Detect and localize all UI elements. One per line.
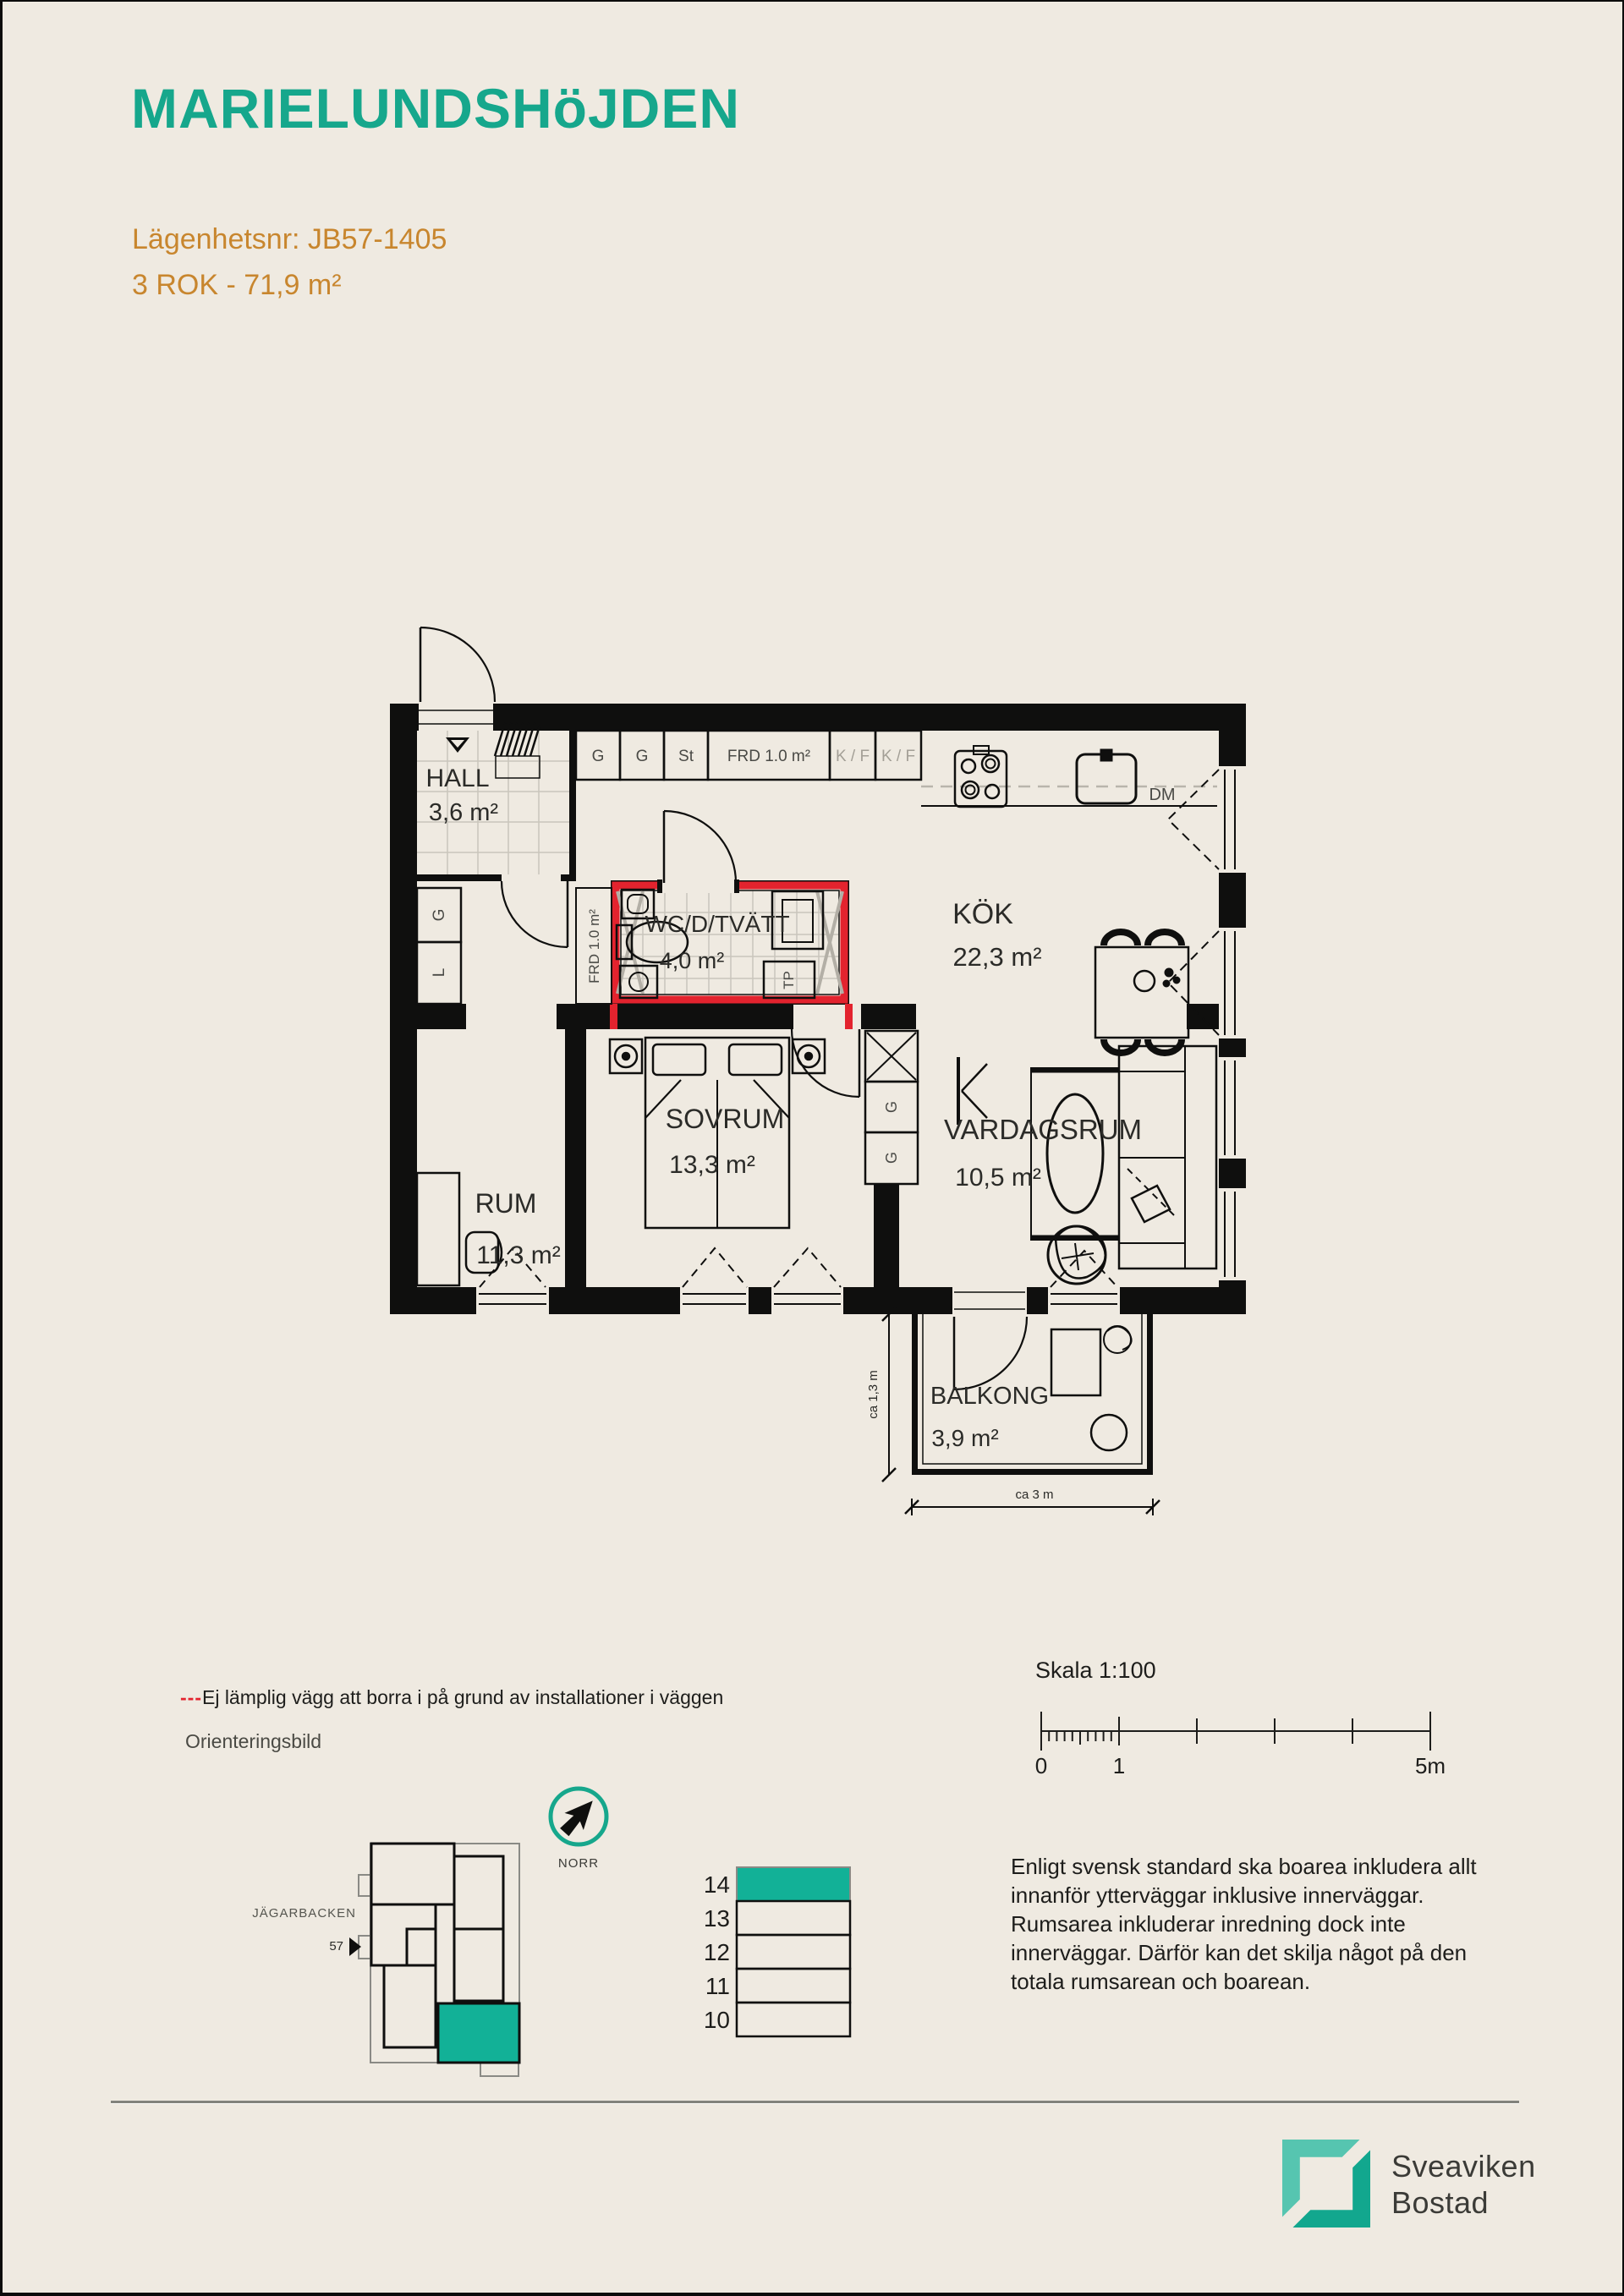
- drill-warning-text: Ej lämplig vägg att borra i på grund av …: [202, 1686, 723, 1708]
- floor-number-13: 13: [704, 1905, 730, 1932]
- floorplan-drawing: G G St FRD 1.0 m² K / F K / F: [366, 577, 1263, 1524]
- coffee-table-icon: [1047, 1094, 1103, 1213]
- floorplan-document-page: MARIELUNDSHöJDEN Lägenhetsnr: JB57-1405 …: [0, 0, 1624, 2296]
- entry-hatch: [495, 723, 540, 778]
- dimension-lines: [882, 1307, 1160, 1515]
- closet-g-label: G: [883, 1101, 900, 1113]
- balcony-table-icon: [1051, 1329, 1100, 1395]
- room-label-balkong: BALKONG: [930, 1383, 1049, 1410]
- closet-g-label: G: [883, 1152, 900, 1164]
- floor-selector: 14 13 12 11 10: [688, 1862, 865, 2044]
- scale-label: Skala 1:100: [1035, 1658, 1156, 1683]
- dishwasher-label: DM: [1149, 786, 1175, 804]
- room-area-wc: 4,0 m²: [660, 948, 725, 973]
- entrance-door: [419, 627, 495, 753]
- footer-divider: [111, 2101, 1519, 2104]
- balcony-width-dimension: ca 3 m: [1015, 1488, 1053, 1502]
- north-label: NORR: [558, 1856, 599, 1871]
- logo-line2: Bostad: [1391, 2184, 1536, 2221]
- room-label-vardagsrum: VARDAGSRUM: [944, 1114, 1142, 1145]
- closet-g-label: G: [636, 748, 649, 765]
- floor-14-highlight: [737, 1867, 850, 1901]
- floor-number-11: 11: [705, 1973, 730, 1999]
- room-label-hall: HALL: [425, 764, 489, 792]
- scale-tick-0: 0: [1035, 1753, 1047, 1778]
- room-area-hall: 3,6 m²: [429, 799, 499, 826]
- room-label-rum: RUM: [475, 1188, 537, 1219]
- floor-number-14: 14: [704, 1871, 730, 1898]
- tp-label: TP: [781, 971, 797, 989]
- fridge-freezer-label: K / F: [836, 748, 870, 765]
- room-labels: HALL 3,6 m² KÖK 22,3 m² WC/D/TVÄTT 4,0 m…: [425, 764, 1142, 1451]
- room-area-kok: 22,3 m²: [952, 942, 1041, 972]
- rok-area-line: 3 ROK - 71,9 m²: [132, 269, 342, 302]
- red-dash-key: ---: [180, 1686, 202, 1708]
- closet-frd-label: FRD 1.0 m²: [727, 748, 810, 765]
- room-area-rum: 11,3 m²: [476, 1241, 560, 1269]
- scale-tick-5m: 5m: [1415, 1753, 1446, 1778]
- balcony-door: [954, 1317, 1027, 1389]
- room-label-wc: WC/D/TVÄTT: [645, 911, 789, 937]
- boarea-legal-text: Enligt svensk standard ska boarea inklud…: [1011, 1852, 1518, 1996]
- hall-inner-door: [502, 881, 568, 947]
- scale-bar: Skala 1:100 0 1 5m: [1022, 1651, 1462, 1782]
- orientation-title: Orienteringsbild: [185, 1730, 321, 1753]
- livingroom-furniture: [1031, 1046, 1216, 1284]
- balcony: ca 1,3 m ca 3 m: [866, 1307, 1160, 1515]
- closet-g-label: G: [592, 748, 605, 765]
- highlighted-building-block: [438, 2003, 519, 2063]
- fridge-freezer-label: K / F: [881, 748, 915, 765]
- closet-st-label: St: [678, 748, 694, 765]
- balcony-depth-dimension: ca 1,3 m: [866, 1370, 881, 1419]
- floor-number-12: 12: [704, 1939, 730, 1965]
- page-title: MARIELUNDSHöJDEN: [131, 76, 740, 140]
- room-label-sovrum: SOVRUM: [666, 1104, 784, 1134]
- room-area-sovrum: 13,3 m²: [669, 1151, 755, 1179]
- room-area-vardagsrum: 10,5 m²: [955, 1164, 1041, 1192]
- site-orientation-map: JÄGARBACKEN 57: [206, 1833, 561, 2086]
- closet-l-label: L: [431, 968, 448, 978]
- dining-table-icon: [1095, 947, 1188, 1038]
- logo-wordmark: Sveaviken Bostad: [1391, 2148, 1536, 2221]
- right-windows: [1225, 770, 1235, 1277]
- frd-vertical-label: FRD 1.0 m²: [586, 909, 602, 984]
- room-area-balkong: 3,9 m²: [931, 1425, 998, 1451]
- balcony-stool-icon: [1091, 1415, 1127, 1450]
- logo-line1: Sveaviken: [1391, 2148, 1536, 2184]
- walls: [390, 704, 1246, 1314]
- site-street-label: JÄGARBACKEN: [252, 1906, 356, 1921]
- drill-warning-note: ---Ej lämplig vägg att borra i på grund …: [180, 1686, 723, 1709]
- apartment-number-line: Lägenhetsnr: JB57-1405: [132, 223, 447, 256]
- floor-number-10: 10: [704, 2007, 730, 2033]
- sveaviken-logo-icon: [1282, 2140, 1370, 2228]
- room-label-kok: KÖK: [952, 898, 1013, 930]
- scale-tick-1: 1: [1113, 1753, 1125, 1778]
- sink-icon: [1077, 754, 1136, 803]
- closet-g-label: G: [431, 909, 448, 922]
- site-number-label: 57: [329, 1939, 343, 1954]
